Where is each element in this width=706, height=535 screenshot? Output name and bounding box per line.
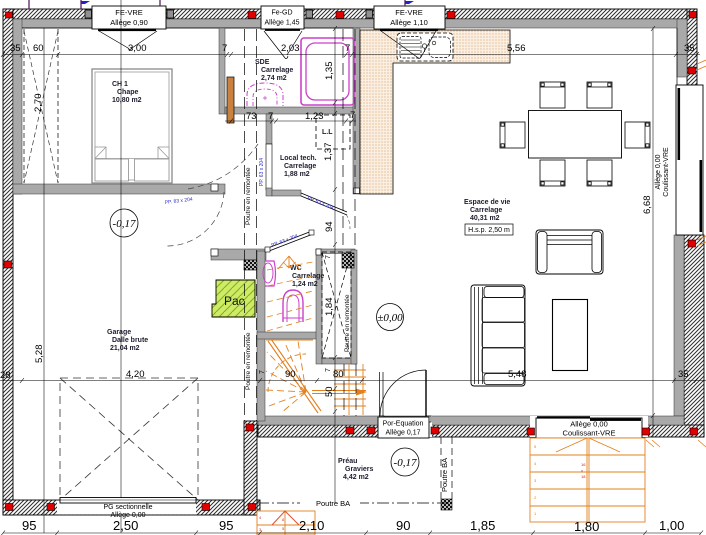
svg-text:Chape: Chape [117,89,139,96]
svg-text:1,00: 1,00 [659,518,684,533]
svg-text:Coulissant-VRE: Coulissant-VRE [563,429,616,438]
svg-text:Carrelage: Carrelage [261,67,293,74]
svg-text:1,80: 1,80 [574,519,599,534]
svg-text:Carrelage: Carrelage [292,273,324,280]
svg-text:1,37: 1,37 [323,143,334,162]
svg-text:94: 94 [324,221,335,232]
svg-text:5,28: 5,28 [34,345,45,364]
svg-text:L.L: L.L [322,129,333,136]
svg-text:SDE: SDE [255,59,270,66]
svg-text:Pac: Pac [224,294,245,308]
svg-text:Allège 1,45: Allège 1,45 [264,20,299,27]
svg-text:35: 35 [10,43,21,54]
svg-text:Allège 0,00: Allège 0,00 [655,154,662,189]
svg-text:1,85: 1,85 [470,518,495,533]
svg-text:16: 16 [581,462,586,467]
svg-text:1,88 m2: 1,88 m2 [284,171,310,178]
svg-text:28: 28 [0,370,11,381]
svg-text:1,24 m2: 1,24 m2 [292,281,318,288]
svg-text:73: 73 [246,111,257,122]
svg-text:Por-Equation: Por-Equation [383,421,424,428]
svg-text:±0,00: ±0,00 [377,312,403,324]
svg-text:40,31 m2: 40,31 m2 [470,215,500,222]
svg-text:7: 7 [222,43,227,54]
svg-text:95: 95 [22,518,36,533]
svg-text:90: 90 [285,369,296,380]
svg-text:95: 95 [219,518,233,533]
svg-text:35: 35 [684,43,695,54]
svg-text:5,48: 5,48 [508,369,527,380]
svg-text:Carrelage: Carrelage [470,207,502,214]
svg-text:Poutre en remontée: Poutre en remontée [245,332,252,390]
svg-text:2,70: 2,70 [33,94,44,113]
svg-text:Poutre en remontée: Poutre en remontée [344,294,351,352]
svg-text:Fe-GD: Fe-GD [272,10,293,17]
svg-text:Allège 0,17: Allège 0,17 [385,430,420,437]
svg-text:Carrelage: Carrelage [284,163,316,170]
svg-text:Poutre en remontée: Poutre en remontée [245,167,252,225]
svg-text:7: 7 [259,370,266,374]
svg-text:Local tech.: Local tech. [280,155,317,162]
svg-text:Espace de vie: Espace de vie [464,199,510,206]
svg-text:PG sectionnelle: PG sectionnelle [103,504,152,511]
svg-text:Allège 1,10: Allège 1,10 [390,18,428,27]
svg-text:3,00: 3,00 [128,43,147,54]
svg-text:Garage: Garage [107,329,131,336]
svg-text:Poutre BA: Poutre BA [440,458,449,492]
svg-text:CH 1: CH 1 [112,81,128,88]
svg-text:7: 7 [325,368,332,372]
svg-text:7: 7 [325,255,332,259]
svg-text:PP. 63 x 204: PP. 63 x 204 [259,158,265,186]
svg-text:Coulissant-VRE: Coulissant-VRE [663,147,670,197]
svg-text:18: 18 [581,474,586,479]
svg-text:90: 90 [396,518,410,533]
svg-text:Graviers: Graviers [345,466,374,473]
svg-text:7: 7 [268,111,273,122]
svg-text:2,50: 2,50 [113,518,138,533]
svg-text:4,42 m2: 4,42 m2 [343,474,369,481]
svg-text:-0,17: -0,17 [113,218,136,230]
svg-text:21,04 m2: 21,04 m2 [110,345,140,352]
svg-text:60: 60 [33,43,44,54]
svg-text:1,23: 1,23 [305,111,324,122]
svg-text:2,10: 2,10 [299,518,324,533]
svg-text:7: 7 [345,43,350,54]
svg-text:10,80 m2: 10,80 m2 [112,97,142,104]
svg-text:35: 35 [678,369,689,380]
svg-text:FE-VRE: FE-VRE [395,8,423,17]
svg-text:Poutre BA: Poutre BA [316,499,350,508]
svg-text:-0,17: -0,17 [394,457,417,469]
svg-text:50: 50 [324,386,335,397]
svg-text:1,84: 1,84 [324,298,335,317]
svg-text:1,35: 1,35 [324,62,335,81]
svg-text:80: 80 [333,369,344,380]
svg-text:5,56: 5,56 [507,43,526,54]
svg-text:FE-VRE: FE-VRE [115,8,143,17]
svg-text:Allège 0,90: Allège 0,90 [110,18,148,27]
svg-text:Allège 0,00: Allège 0,00 [110,512,145,519]
svg-text:4,20: 4,20 [126,369,145,380]
svg-text:H.s.p. 2,50 m: H.s.p. 2,50 m [468,227,510,234]
svg-text:2,03: 2,03 [281,43,300,54]
svg-text:Préau: Préau [338,458,357,465]
svg-text:Dalle brute: Dalle brute [112,337,148,344]
svg-text:7: 7 [350,110,355,121]
svg-text:2,74 m2: 2,74 m2 [261,75,287,82]
svg-text:x: x [581,468,583,473]
svg-text:6,68: 6,68 [642,196,653,215]
